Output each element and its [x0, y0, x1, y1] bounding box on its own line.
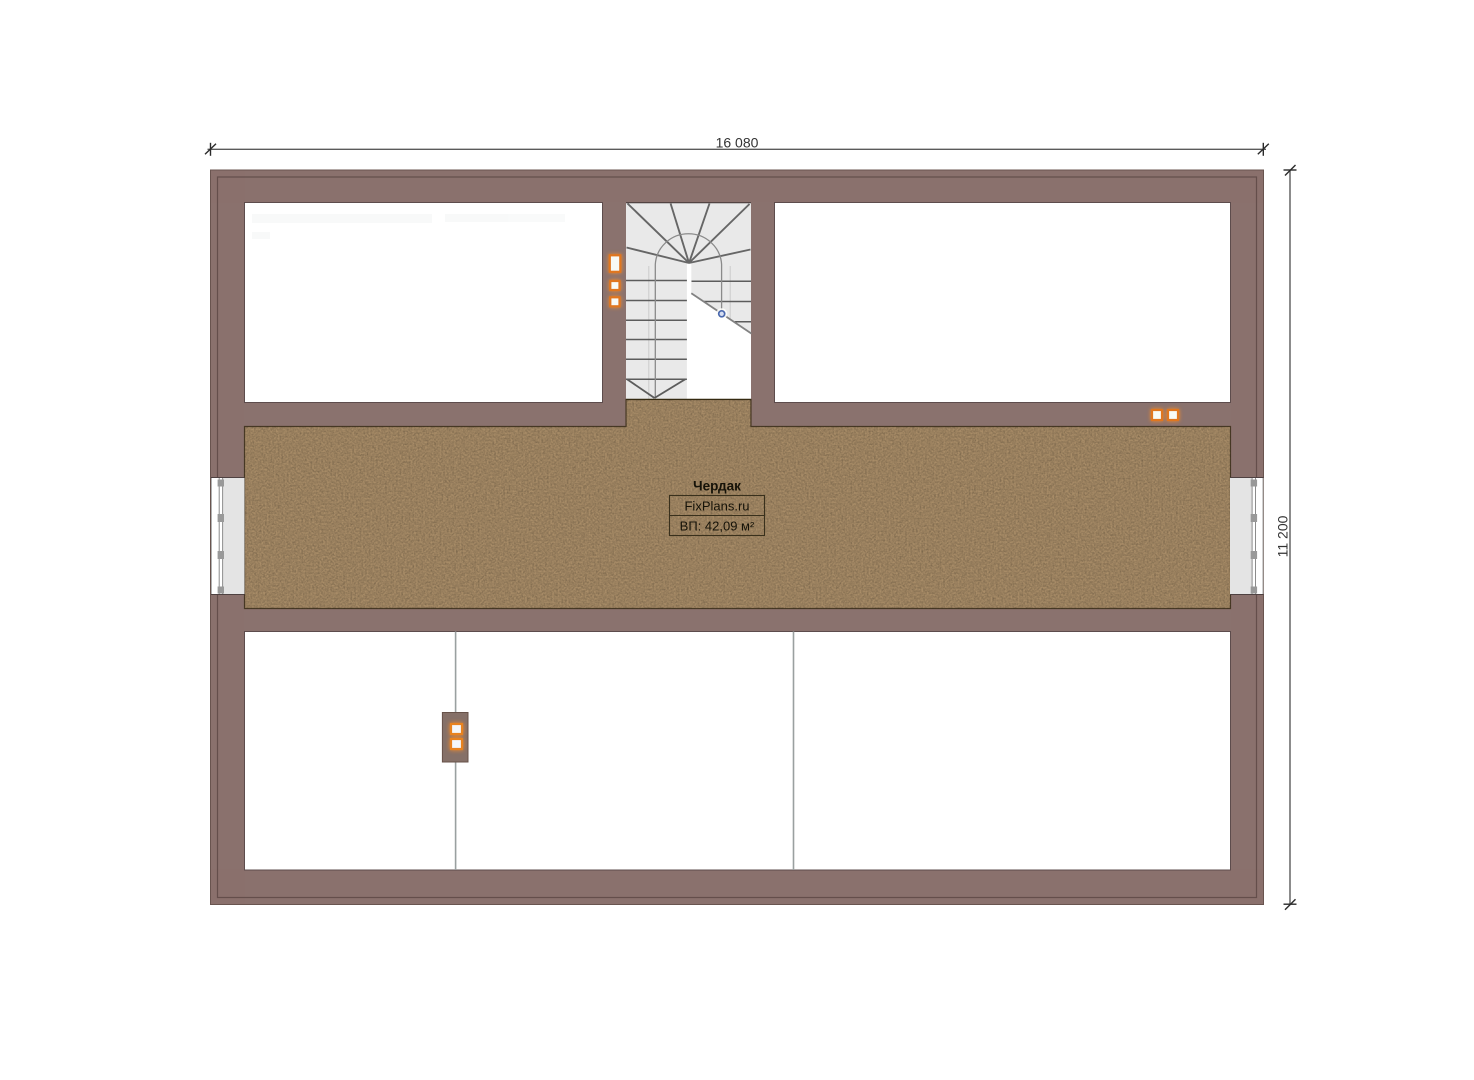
svg-text:Чердак: Чердак — [693, 479, 741, 494]
svg-text:16 080: 16 080 — [716, 134, 759, 150]
svg-text:11 200: 11 200 — [1275, 515, 1291, 557]
svg-text:FixPlans.ru: FixPlans.ru — [684, 499, 749, 514]
svg-text:ВП: 42,09 м²: ВП: 42,09 м² — [680, 519, 755, 534]
